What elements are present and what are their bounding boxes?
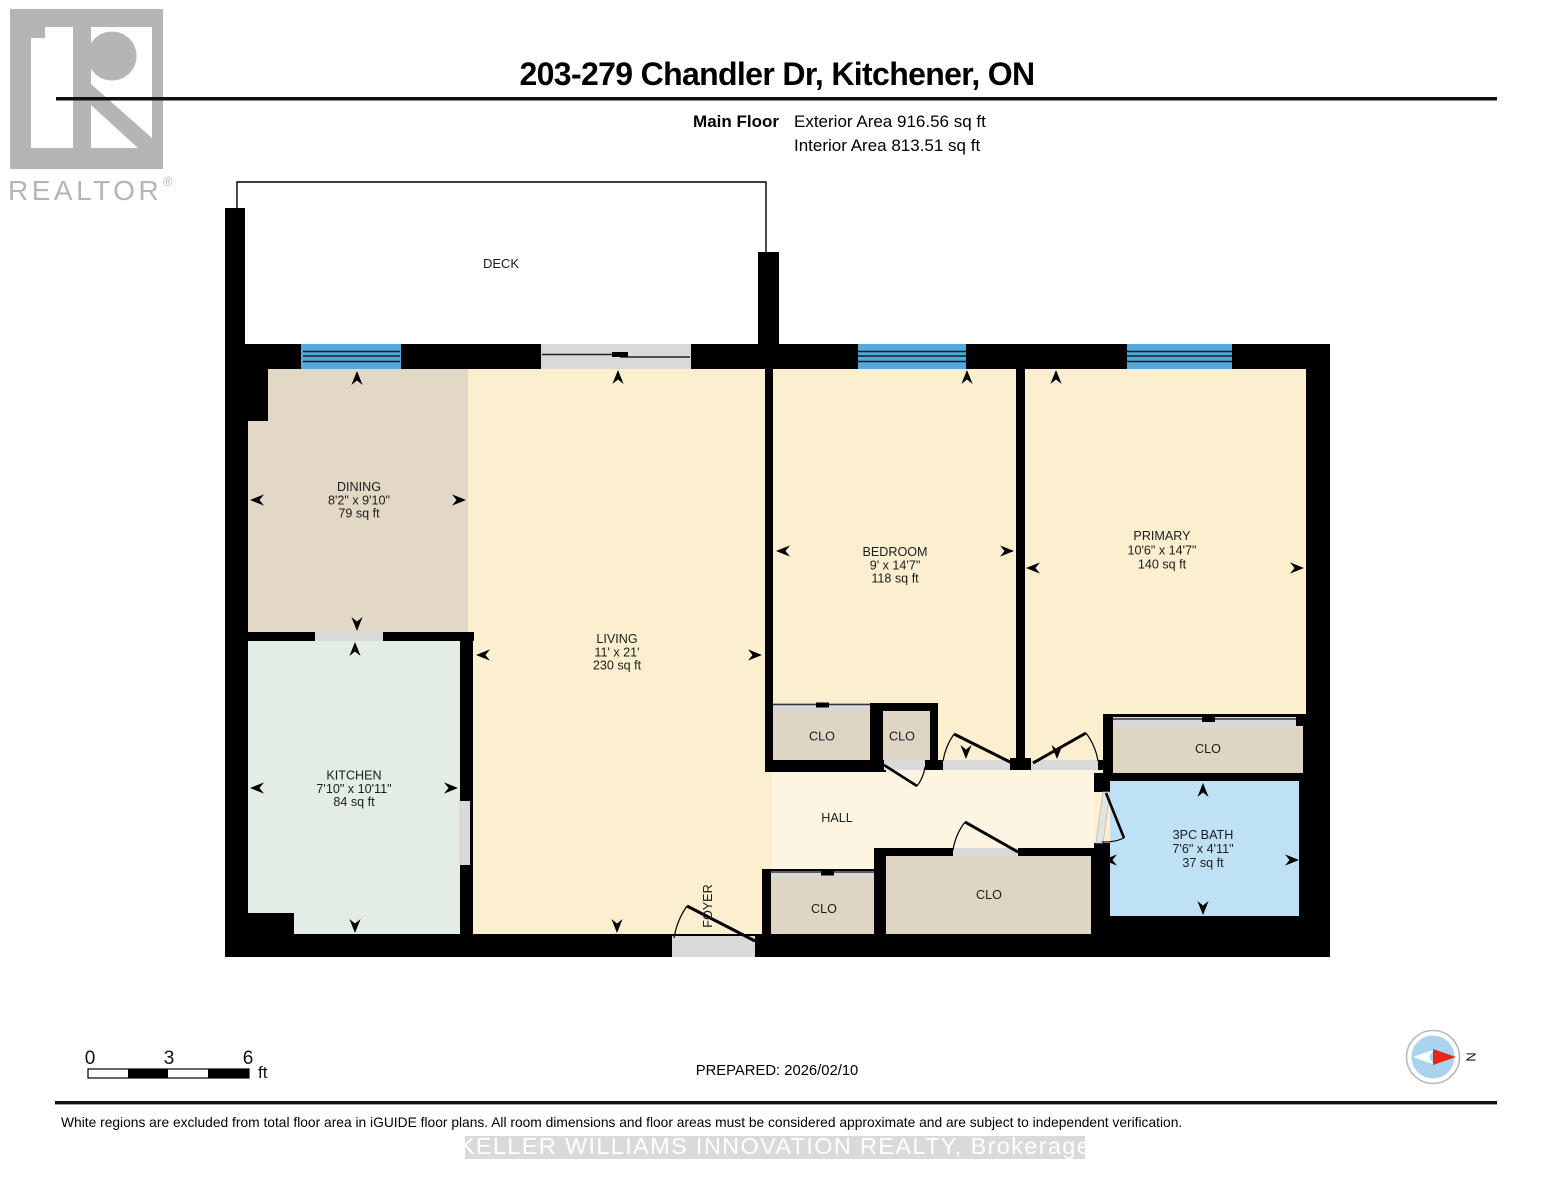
svg-text:PREPARED: 2026/02/10: PREPARED: 2026/02/10 xyxy=(696,1063,859,1079)
svg-text:CLO: CLO xyxy=(811,902,837,916)
svg-text:230 sq ft: 230 sq ft xyxy=(593,659,642,673)
svg-text:BEDROOM: BEDROOM xyxy=(862,545,927,559)
svg-text:7'10" x 10'11": 7'10" x 10'11" xyxy=(316,782,391,796)
svg-text:CLO: CLO xyxy=(1195,742,1221,756)
svg-text:®: ® xyxy=(163,174,173,189)
svg-text:CLO: CLO xyxy=(889,730,915,744)
svg-text:140 sq ft: 140 sq ft xyxy=(1138,558,1187,572)
svg-text:Main Floor: Main Floor xyxy=(693,112,779,131)
svg-text:LIVING: LIVING xyxy=(596,632,637,646)
svg-text:7'6" x 4'11": 7'6" x 4'11" xyxy=(1172,842,1233,856)
svg-text:79 sq ft: 79 sq ft xyxy=(338,507,380,521)
svg-text:6: 6 xyxy=(243,1048,254,1069)
svg-text:3PC BATH: 3PC BATH xyxy=(1173,828,1234,842)
svg-text:9' x 14'7": 9' x 14'7" xyxy=(870,559,921,573)
svg-text:3: 3 xyxy=(164,1048,175,1069)
svg-text:37 sq ft: 37 sq ft xyxy=(1182,856,1224,870)
svg-text:11' x 21': 11' x 21' xyxy=(594,646,639,660)
svg-text:DECK: DECK xyxy=(483,256,519,271)
svg-text:118 sq ft: 118 sq ft xyxy=(871,572,919,586)
svg-text:REALTOR: REALTOR xyxy=(8,175,162,206)
svg-text:203-279 Chandler Dr, Kitchener: 203-279 Chandler Dr, Kitchener, ON xyxy=(520,56,1035,92)
svg-text:White regions are excluded fro: White regions are excluded from total fl… xyxy=(61,1115,1182,1130)
svg-text:Exterior Area 916.56 sq ft: Exterior Area 916.56 sq ft xyxy=(794,112,986,131)
svg-text:84 sq ft: 84 sq ft xyxy=(333,795,375,809)
svg-text:CLO: CLO xyxy=(976,888,1002,902)
svg-text:10'6" x 14'7": 10'6" x 14'7" xyxy=(1127,544,1196,558)
svg-text:FOYER: FOYER xyxy=(701,884,715,927)
svg-text:0: 0 xyxy=(85,1048,96,1069)
svg-text:8'2" x 9'10": 8'2" x 9'10" xyxy=(328,494,390,508)
svg-text:KITCHEN: KITCHEN xyxy=(326,769,381,783)
svg-text:N: N xyxy=(1464,1052,1479,1061)
svg-text:KELLER WILLIAMS INNOVATION REA: KELLER WILLIAMS INNOVATION REALTY, Broke… xyxy=(459,1133,1091,1159)
svg-text:Interior Area 813.51 sq ft: Interior Area 813.51 sq ft xyxy=(794,136,980,155)
svg-text:ft: ft xyxy=(258,1063,268,1082)
svg-text:CLO: CLO xyxy=(809,730,835,744)
svg-text:PRIMARY: PRIMARY xyxy=(1133,529,1191,543)
svg-text:HALL: HALL xyxy=(821,811,853,825)
svg-text:DINING: DINING xyxy=(337,480,381,494)
